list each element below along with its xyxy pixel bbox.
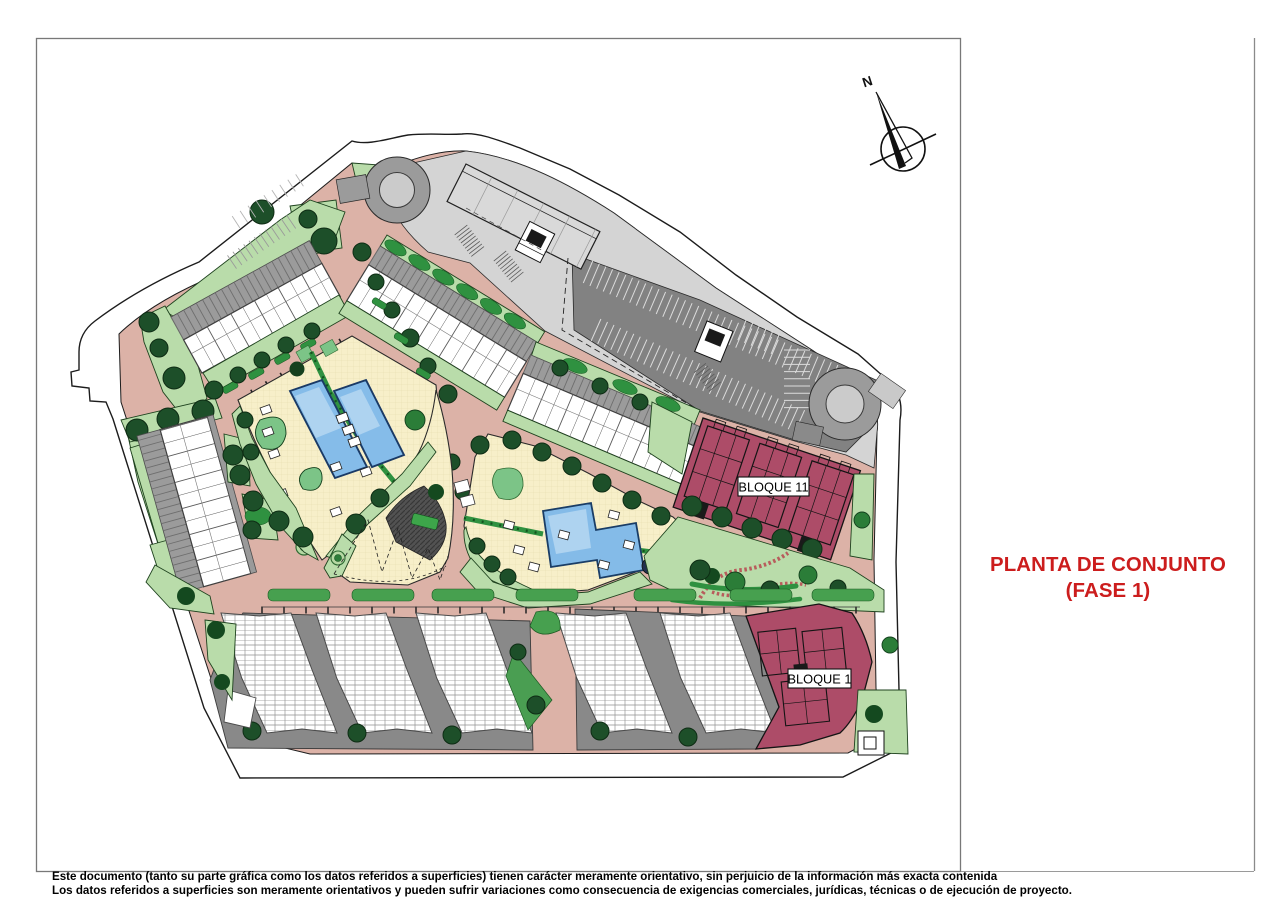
svg-text:BLOQUE 1: BLOQUE 1 [787, 672, 851, 687]
svg-text:BLOQUE 11: BLOQUE 11 [738, 480, 808, 495]
